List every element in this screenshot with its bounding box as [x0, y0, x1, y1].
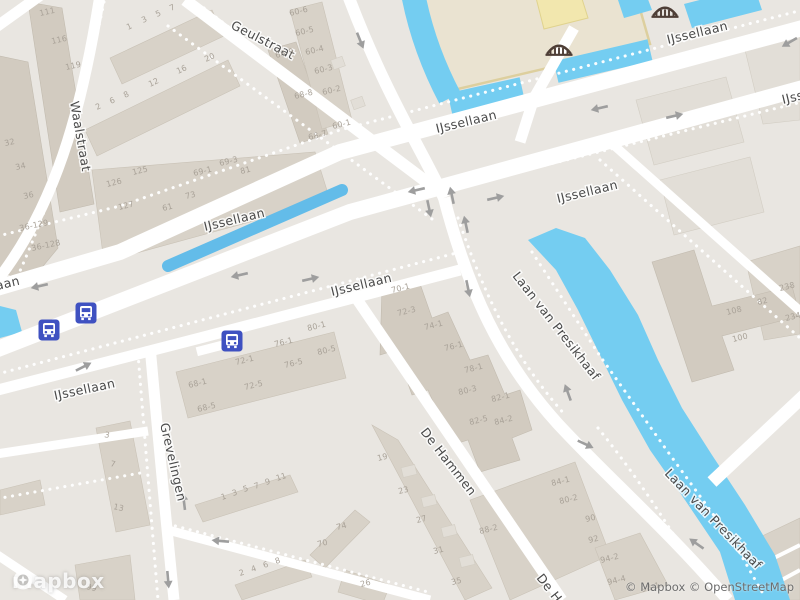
map-canvas[interactable]: GeulstraatWaalstraatIJssellaanIJssellaan…	[0, 0, 800, 600]
oneway-arrow-icon	[590, 102, 609, 115]
street-label: IJssellaan	[0, 273, 21, 302]
house-number: 19	[376, 452, 388, 463]
building	[351, 96, 366, 110]
house-number: 23	[397, 485, 409, 496]
street-label: IJssellaan	[555, 177, 619, 206]
building	[195, 475, 298, 522]
house-number: 16	[175, 63, 188, 76]
house-number: 8	[122, 89, 131, 99]
bus-stop-icon	[76, 303, 97, 324]
house-number: 2	[94, 101, 103, 111]
house-number: 119	[65, 60, 82, 72]
house-number: 4	[250, 564, 258, 574]
map-svg: GeulstraatWaalstraatIJssellaanIJssellaan…	[0, 0, 800, 600]
bus-stop-icon	[39, 320, 60, 341]
road-side-street	[168, 530, 430, 600]
house-number: 3	[140, 14, 149, 24]
house-number: 100	[731, 331, 749, 344]
oneway-arrow-icon	[486, 192, 505, 205]
bridge-icon	[652, 8, 679, 17]
building	[85, 60, 240, 156]
house-number: 5	[154, 8, 163, 18]
house-number: 6	[108, 95, 117, 105]
mapbox-logo[interactable]: mapbox	[12, 569, 105, 593]
road-canal-bridge	[712, 390, 800, 482]
house-number: 7	[168, 2, 177, 12]
mapbox-logo-icon	[12, 569, 34, 591]
house-number: 1	[125, 21, 134, 31]
bus-stop-icon	[222, 331, 243, 352]
oneway-arrow-icon	[561, 383, 575, 402]
building	[0, 480, 45, 515]
oneway-arrow-icon	[301, 273, 320, 286]
oneway-arrow-icon	[230, 269, 249, 282]
map-attribution[interactable]: © Mapbox © OpenStreetMap	[625, 580, 794, 594]
house-number: 2	[238, 568, 246, 578]
house-number: 80-1	[306, 320, 327, 333]
house-number: 12	[147, 76, 160, 89]
street-label: IJssellaan	[53, 375, 117, 403]
